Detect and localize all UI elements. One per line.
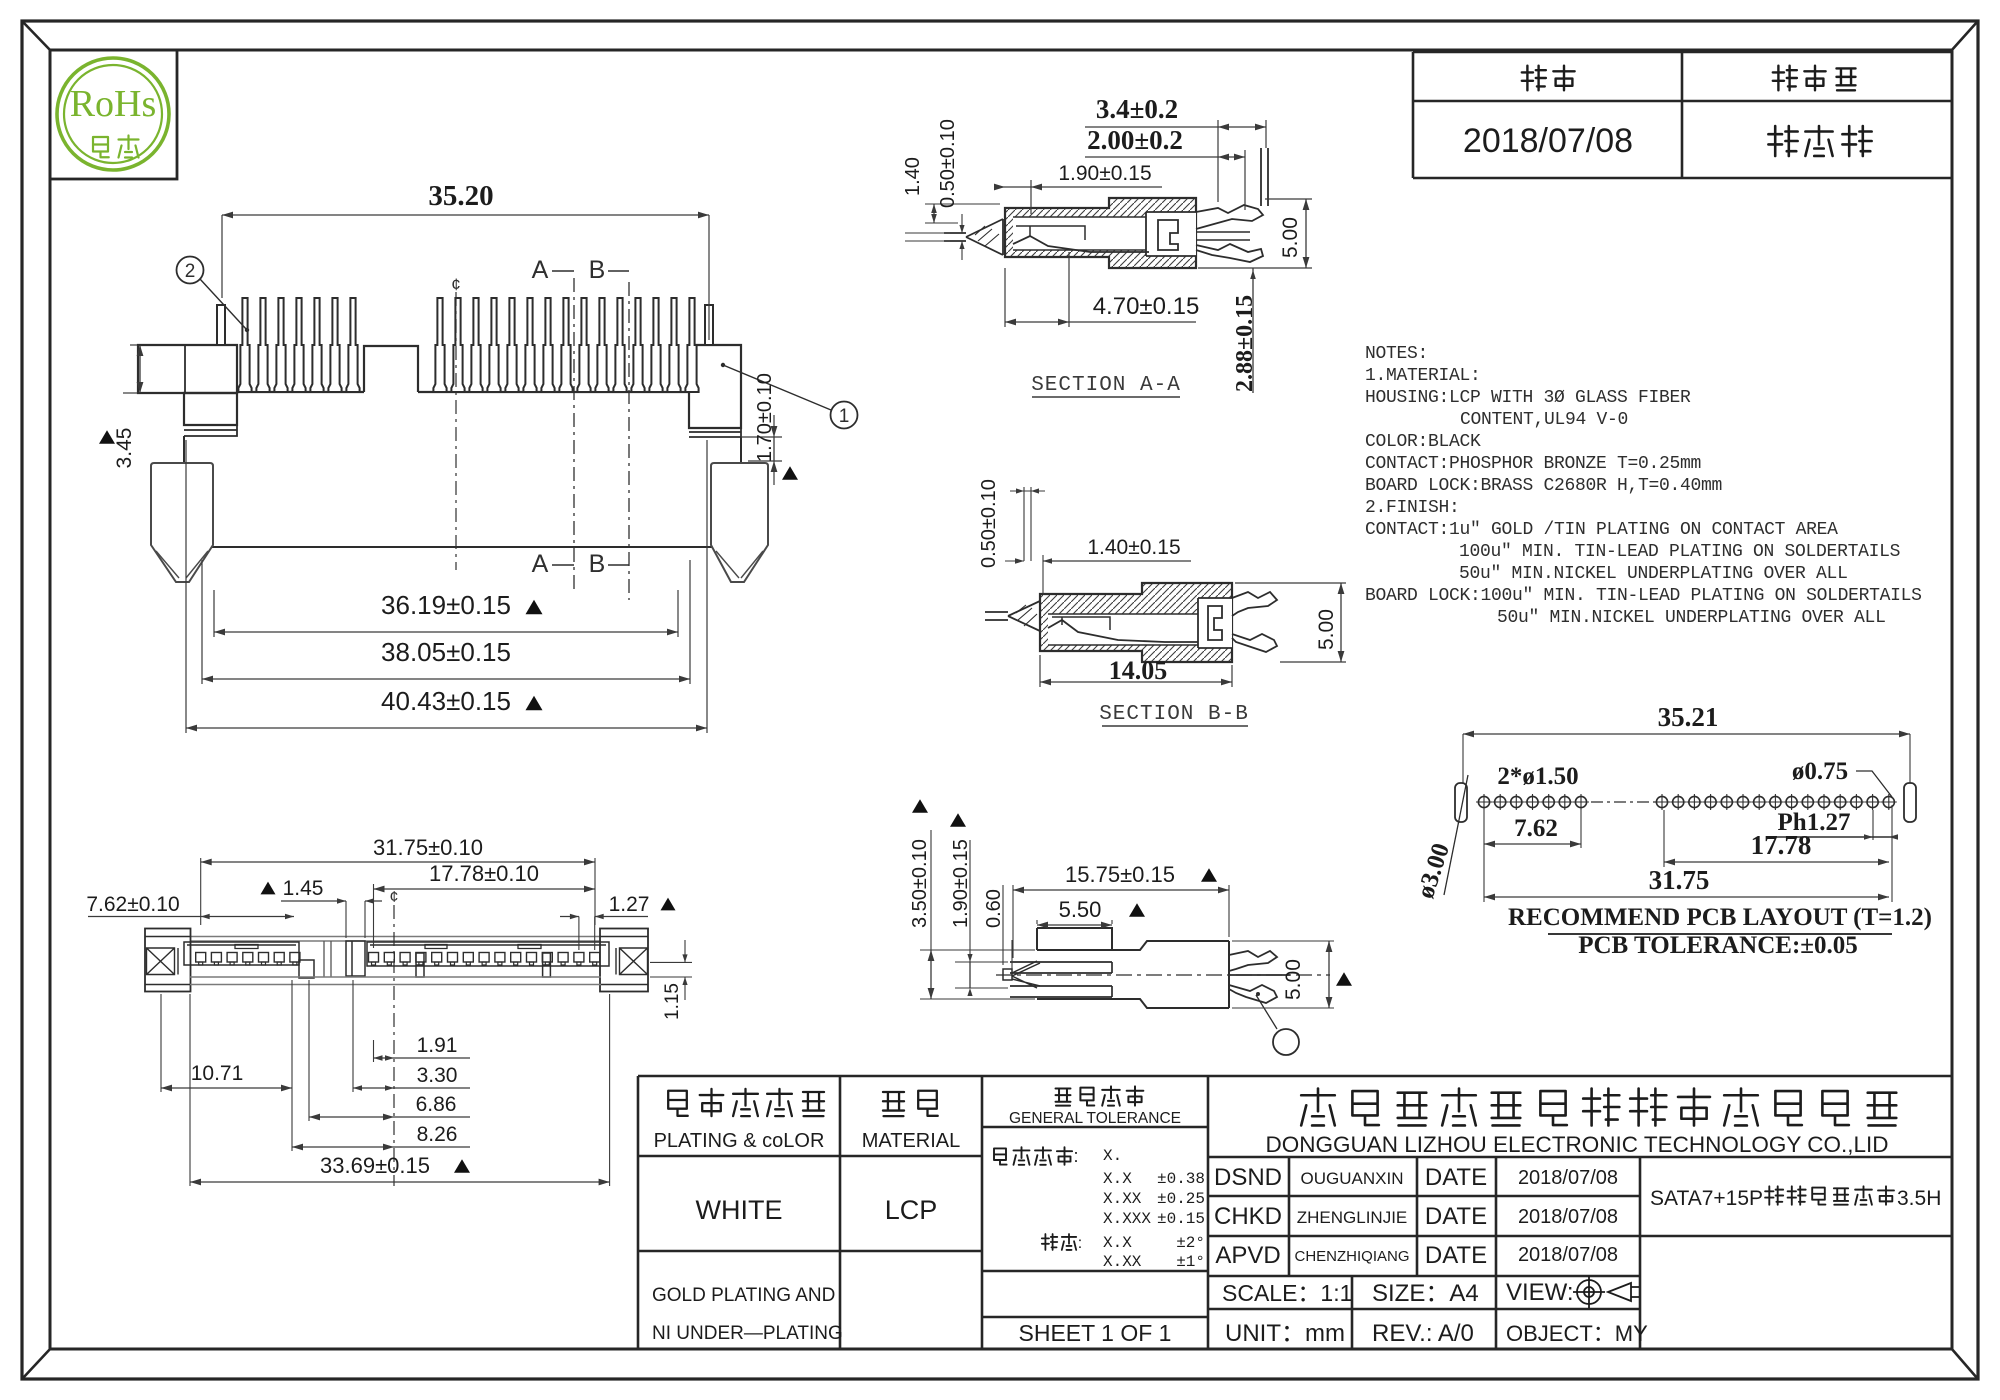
svg-text:7.62±0.10: 7.62±0.10 (86, 893, 179, 916)
svg-text:RECOMMEND PCB LAYOUT (T=1.2): RECOMMEND PCB LAYOUT (T=1.2) (1508, 904, 1932, 931)
svg-text:BOARD LOCK:100u″ MIN. TIN-LEAD: BOARD LOCK:100u″ MIN. TIN-LEAD PLATING O… (1365, 586, 1922, 606)
svg-text:MATERIAL: MATERIAL (862, 1130, 961, 1152)
svg-text:CONTACT:PHOSPHOR BRONZE T=0.25: CONTACT:PHOSPHOR BRONZE T=0.25mm (1365, 454, 1701, 474)
svg-text:50u″ MIN.NICKEL UNDERPLATING O: 50u″ MIN.NICKEL UNDERPLATING OVER ALL (1497, 608, 1886, 628)
svg-text:HOUSING:LCP WITH 3Ø GLASS FIBE: HOUSING:LCP WITH 3Ø GLASS FIBER (1365, 388, 1691, 408)
svg-text:VIEW:: VIEW: (1506, 1279, 1574, 1306)
svg-text:100u″ MIN. TIN-LEAD PLATING ON: 100u″ MIN. TIN-LEAD PLATING ON SOLDERTAI… (1459, 542, 1900, 562)
svg-text:±0.15: ±0.15 (1157, 1210, 1205, 1228)
svg-text:COLOR:BLACK: COLOR:BLACK (1365, 432, 1481, 452)
svg-text:±1°: ±1° (1176, 1253, 1205, 1271)
svg-text:1.90±0.15: 1.90±0.15 (950, 839, 972, 928)
svg-text:DSND: DSND (1214, 1164, 1282, 1191)
svg-text:1.MATERIAL:: 1.MATERIAL: (1365, 366, 1481, 386)
svg-text:38.05±0.15: 38.05±0.15 (381, 637, 511, 667)
svg-text:0.50±0.10: 0.50±0.10 (978, 479, 1000, 568)
svg-text:1.27: 1.27 (609, 893, 650, 916)
svg-text:SCALE：1:1: SCALE：1:1 (1222, 1280, 1352, 1306)
svg-text:36.19±0.15: 36.19±0.15 (381, 590, 511, 620)
svg-text:ø0.75: ø0.75 (1792, 758, 1848, 785)
svg-text:2018/07/08: 2018/07/08 (1518, 1206, 1618, 1228)
svg-text:2.FINISH:: 2.FINISH: (1365, 498, 1460, 518)
svg-text:2: 2 (185, 261, 196, 282)
svg-text:OBJECT：MY: OBJECT：MY (1506, 1321, 1648, 1346)
svg-text:5.00: 5.00 (1315, 609, 1338, 650)
svg-text:5.50: 5.50 (1059, 897, 1102, 922)
svg-text:1.45: 1.45 (283, 877, 324, 900)
svg-text:DATE: DATE (1425, 1164, 1487, 1191)
svg-text:33.69±0.15: 33.69±0.15 (320, 1153, 430, 1178)
svg-text:0.50±0.10: 0.50±0.10 (937, 119, 959, 208)
svg-text:¢: ¢ (390, 889, 399, 906)
svg-text:0.60: 0.60 (983, 889, 1005, 928)
svg-text:DATE: DATE (1425, 1203, 1487, 1230)
svg-text:CHKD: CHKD (1214, 1203, 1282, 1230)
svg-text:3.4±0.2: 3.4±0.2 (1096, 94, 1178, 124)
svg-text:14.05: 14.05 (1109, 656, 1168, 685)
svg-text:±0.25: ±0.25 (1157, 1190, 1205, 1208)
svg-text:35.20: 35.20 (428, 180, 493, 212)
svg-text:CONTACT:1u″ GOLD /TIN PLATING: CONTACT:1u″ GOLD /TIN PLATING ON CONTACT… (1365, 520, 1838, 540)
svg-text:A: A (532, 256, 549, 284)
svg-text:B: B (589, 256, 606, 284)
svg-text:A: A (532, 550, 549, 578)
svg-text:2.88±0.15: 2.88±0.15 (1232, 295, 1258, 392)
svg-text:OUGUANXIN: OUGUANXIN (1301, 1169, 1404, 1188)
svg-text:SECTION B-B: SECTION B-B (1099, 703, 1249, 726)
svg-text:X.XX: X.XX (1103, 1253, 1142, 1271)
svg-text:B: B (589, 550, 606, 578)
svg-text:DONGGUAN LIZHOU ELECTRONIC TEC: DONGGUAN LIZHOU ELECTRONIC TECHNOLOGY CO… (1265, 1132, 1888, 1157)
svg-text:6.86: 6.86 (416, 1093, 457, 1116)
svg-text:WHITE: WHITE (696, 1195, 783, 1225)
svg-text:X.X: X.X (1103, 1170, 1132, 1188)
svg-text:1.70±0.10: 1.70±0.10 (754, 373, 776, 462)
svg-text:LCP: LCP (885, 1195, 938, 1225)
svg-text:2018/07/08: 2018/07/08 (1463, 122, 1633, 160)
svg-text:DATE: DATE (1425, 1242, 1487, 1269)
svg-text::: : (1073, 1146, 1078, 1166)
svg-text:SHEET 1 OF 1: SHEET 1 OF 1 (1019, 1320, 1172, 1346)
svg-text::: : (1078, 1235, 1082, 1252)
svg-text:40.43±0.15: 40.43±0.15 (381, 686, 511, 716)
svg-text:17.78±0.10: 17.78±0.10 (429, 861, 539, 886)
svg-text:X.XXX: X.XXX (1103, 1210, 1151, 1228)
svg-text:1.91: 1.91 (417, 1034, 458, 1057)
svg-text:±0.38: ±0.38 (1157, 1170, 1205, 1188)
svg-text:X.: X. (1103, 1147, 1122, 1165)
svg-text:2018/07/08: 2018/07/08 (1518, 1244, 1618, 1266)
svg-text:1.40±0.15: 1.40±0.15 (1087, 536, 1180, 559)
svg-text:2018/07/08: 2018/07/08 (1518, 1167, 1618, 1189)
svg-text:7.62: 7.62 (1514, 815, 1558, 842)
svg-text:UNIT：mm: UNIT：mm (1225, 1320, 1345, 1347)
svg-text:4.70±0.15: 4.70±0.15 (1093, 293, 1200, 320)
svg-text:3.50±0.10: 3.50±0.10 (909, 839, 931, 928)
svg-text:SATA7+15P: SATA7+15P (1650, 1187, 1763, 1210)
svg-text:17.78: 17.78 (1751, 830, 1812, 860)
svg-text:31.75: 31.75 (1649, 865, 1710, 895)
svg-text:APVD: APVD (1215, 1242, 1280, 1269)
svg-text:X.XX: X.XX (1103, 1190, 1142, 1208)
svg-text:1.90±0.15: 1.90±0.15 (1058, 162, 1151, 185)
svg-text:15.75±0.15: 15.75±0.15 (1065, 862, 1175, 887)
svg-text:CONTENT,UL94 V-0: CONTENT,UL94 V-0 (1460, 410, 1628, 430)
svg-text:10.71: 10.71 (191, 1062, 244, 1085)
svg-text:3.30: 3.30 (417, 1064, 458, 1087)
svg-text:35.21: 35.21 (1658, 702, 1719, 732)
svg-text:5.00: 5.00 (1282, 959, 1305, 1000)
svg-text:1.15: 1.15 (662, 983, 683, 1020)
svg-text:50u″ MIN.NICKEL UNDERPLATING O: 50u″ MIN.NICKEL UNDERPLATING OVER ALL (1459, 564, 1848, 584)
svg-text:1: 1 (839, 406, 850, 427)
svg-text:SECTION A-A: SECTION A-A (1031, 374, 1181, 397)
svg-text:REV.: A/0: REV.: A/0 (1372, 1320, 1474, 1347)
svg-text:2*ø1.50: 2*ø1.50 (1497, 763, 1578, 790)
svg-text:GENERAL TOLERANCE: GENERAL TOLERANCE (1009, 1110, 1181, 1127)
svg-text:PCB TOLERANCE:±0.05: PCB TOLERANCE:±0.05 (1578, 932, 1858, 959)
svg-text:X.X: X.X (1103, 1234, 1132, 1252)
svg-text:GOLD PLATING AND: GOLD PLATING AND (652, 1285, 835, 1306)
svg-text:1.40: 1.40 (902, 157, 924, 196)
svg-text:PLATING & coLOR: PLATING & coLOR (654, 1130, 825, 1152)
svg-text:3.5H: 3.5H (1897, 1187, 1941, 1210)
svg-text:ZHENGLINJIE: ZHENGLINJIE (1297, 1208, 1408, 1227)
svg-text:±2°: ±2° (1176, 1234, 1205, 1252)
svg-text:3.45: 3.45 (113, 428, 136, 469)
svg-text:NOTES:: NOTES: (1365, 344, 1428, 364)
svg-text:NI UNDER—PLATING: NI UNDER—PLATING (652, 1323, 843, 1344)
svg-text:SIZE：A4: SIZE：A4 (1372, 1280, 1479, 1307)
svg-text:BOARD LOCK:BRASS C2680R H,T=0.: BOARD LOCK:BRASS C2680R H,T=0.40mm (1365, 476, 1722, 496)
svg-text:31.75±0.10: 31.75±0.10 (373, 835, 483, 860)
svg-text:8.26: 8.26 (417, 1123, 458, 1146)
svg-text:¢: ¢ (451, 275, 460, 294)
svg-text:RoHs: RoHs (70, 83, 157, 125)
svg-text:2.00±0.2: 2.00±0.2 (1087, 125, 1183, 155)
svg-text:5.00: 5.00 (1279, 217, 1302, 258)
svg-text:CHENZHIQIANG: CHENZHIQIANG (1294, 1248, 1409, 1265)
